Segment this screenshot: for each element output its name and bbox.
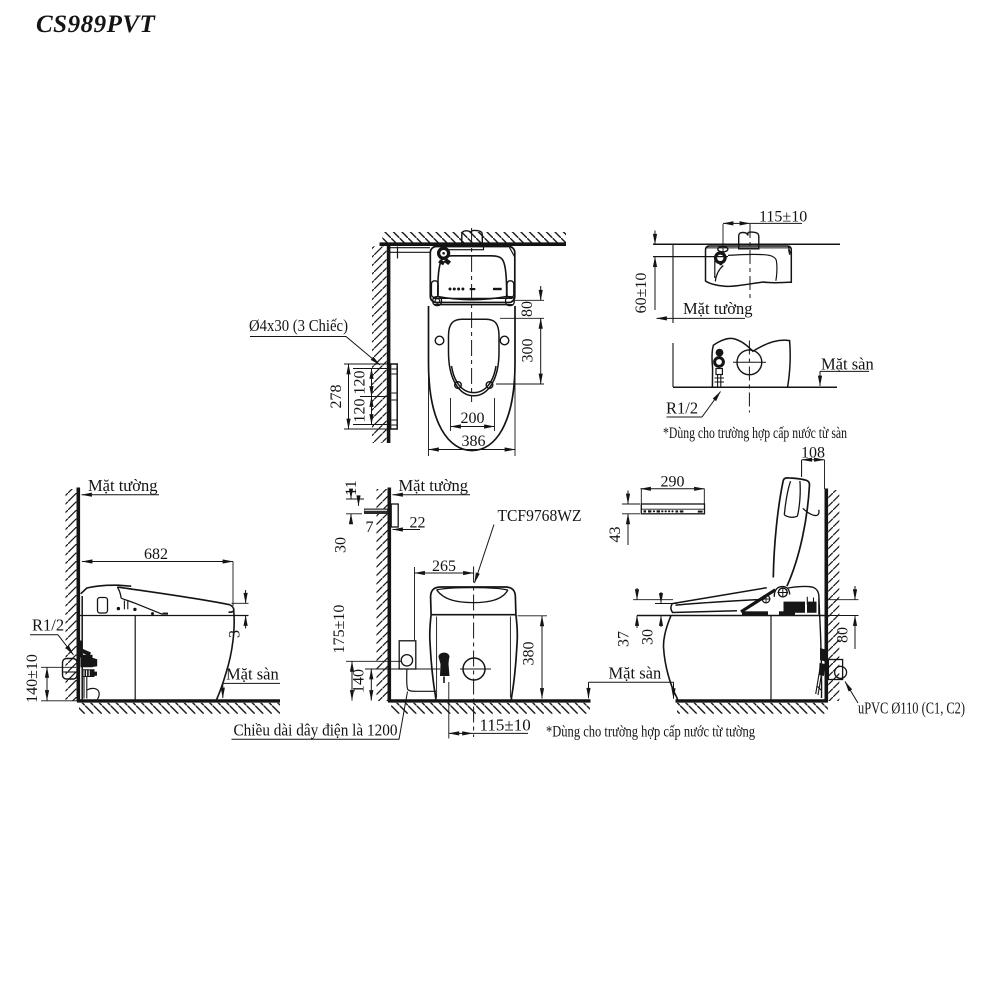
svg-text:80: 80 — [519, 301, 536, 317]
svg-text:108: 108 — [801, 445, 825, 462]
svg-text:Mặt tường: Mặt tường — [399, 476, 468, 495]
svg-text:Mặt sàn: Mặt sàn — [609, 664, 662, 683]
svg-text:7: 7 — [366, 519, 374, 536]
svg-text:60±10: 60±10 — [633, 273, 650, 314]
svg-text:200: 200 — [461, 410, 485, 427]
svg-text:Mặt sàn: Mặt sàn — [821, 355, 874, 374]
svg-text:R1/2: R1/2 — [32, 616, 64, 635]
svg-text:37: 37 — [616, 631, 633, 647]
svg-text:380: 380 — [521, 642, 538, 666]
svg-text:120: 120 — [352, 399, 369, 423]
svg-text:Mặt tường: Mặt tường — [88, 476, 157, 495]
svg-text:Ø4x30 (3 Chiếc): Ø4x30 (3 Chiếc) — [249, 316, 348, 335]
svg-text:115±10: 115±10 — [759, 209, 807, 226]
svg-text:3: 3 — [227, 630, 244, 638]
svg-text:Mặt tường: Mặt tường — [683, 299, 752, 318]
svg-text:22: 22 — [410, 515, 426, 532]
svg-text:30: 30 — [640, 629, 657, 645]
svg-text:CS989PVT: CS989PVT — [36, 11, 157, 38]
svg-text:uPVC Ø110 (C1, C2): uPVC Ø110 (C1, C2) — [858, 699, 965, 718]
svg-text:Mặt sàn: Mặt sàn — [226, 665, 279, 684]
svg-text:43: 43 — [607, 527, 624, 543]
svg-text:*Dùng cho trường hợp cấp nước: *Dùng cho trường hợp cấp nước từ sàn — [663, 425, 847, 442]
svg-text:120: 120 — [352, 371, 369, 395]
svg-text:*Dùng cho trường hợp cấp nước: *Dùng cho trường hợp cấp nước từ tường — [546, 724, 755, 741]
svg-text:140±10: 140±10 — [24, 654, 41, 703]
svg-text:265: 265 — [432, 558, 456, 575]
svg-text:140: 140 — [351, 669, 368, 693]
svg-text:278: 278 — [328, 385, 345, 409]
svg-text:TCF9768WZ: TCF9768WZ — [498, 506, 582, 525]
svg-text:300: 300 — [520, 339, 537, 363]
svg-text:682: 682 — [144, 546, 168, 563]
svg-text:290: 290 — [661, 474, 685, 491]
svg-text:Chiều dài dây điện là 1200: Chiều dài dây điện là 1200 — [234, 721, 398, 740]
svg-text:175±10: 175±10 — [331, 605, 348, 654]
svg-text:R1/2: R1/2 — [666, 399, 698, 418]
svg-text:386: 386 — [462, 433, 486, 450]
svg-text:115±10: 115±10 — [480, 716, 531, 735]
svg-text:30: 30 — [333, 537, 350, 553]
svg-text:80: 80 — [835, 627, 852, 643]
